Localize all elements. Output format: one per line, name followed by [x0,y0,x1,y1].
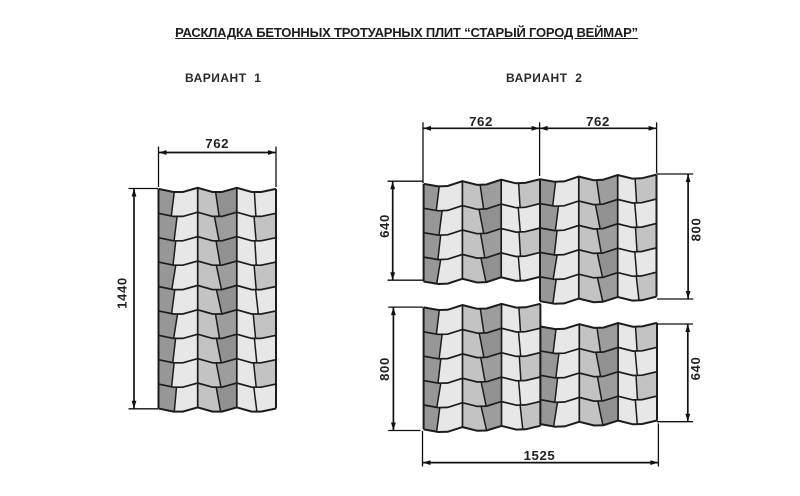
svg-text:1440: 1440 [115,277,130,309]
svg-text:800: 800 [689,218,704,242]
svg-text:1525: 1525 [524,448,556,463]
svg-text:762: 762 [205,136,229,151]
svg-text:800: 800 [377,357,392,381]
svg-text:762: 762 [586,114,610,129]
svg-text:762: 762 [469,114,493,129]
svg-text:640: 640 [688,357,703,381]
svg-text:640: 640 [377,214,392,238]
